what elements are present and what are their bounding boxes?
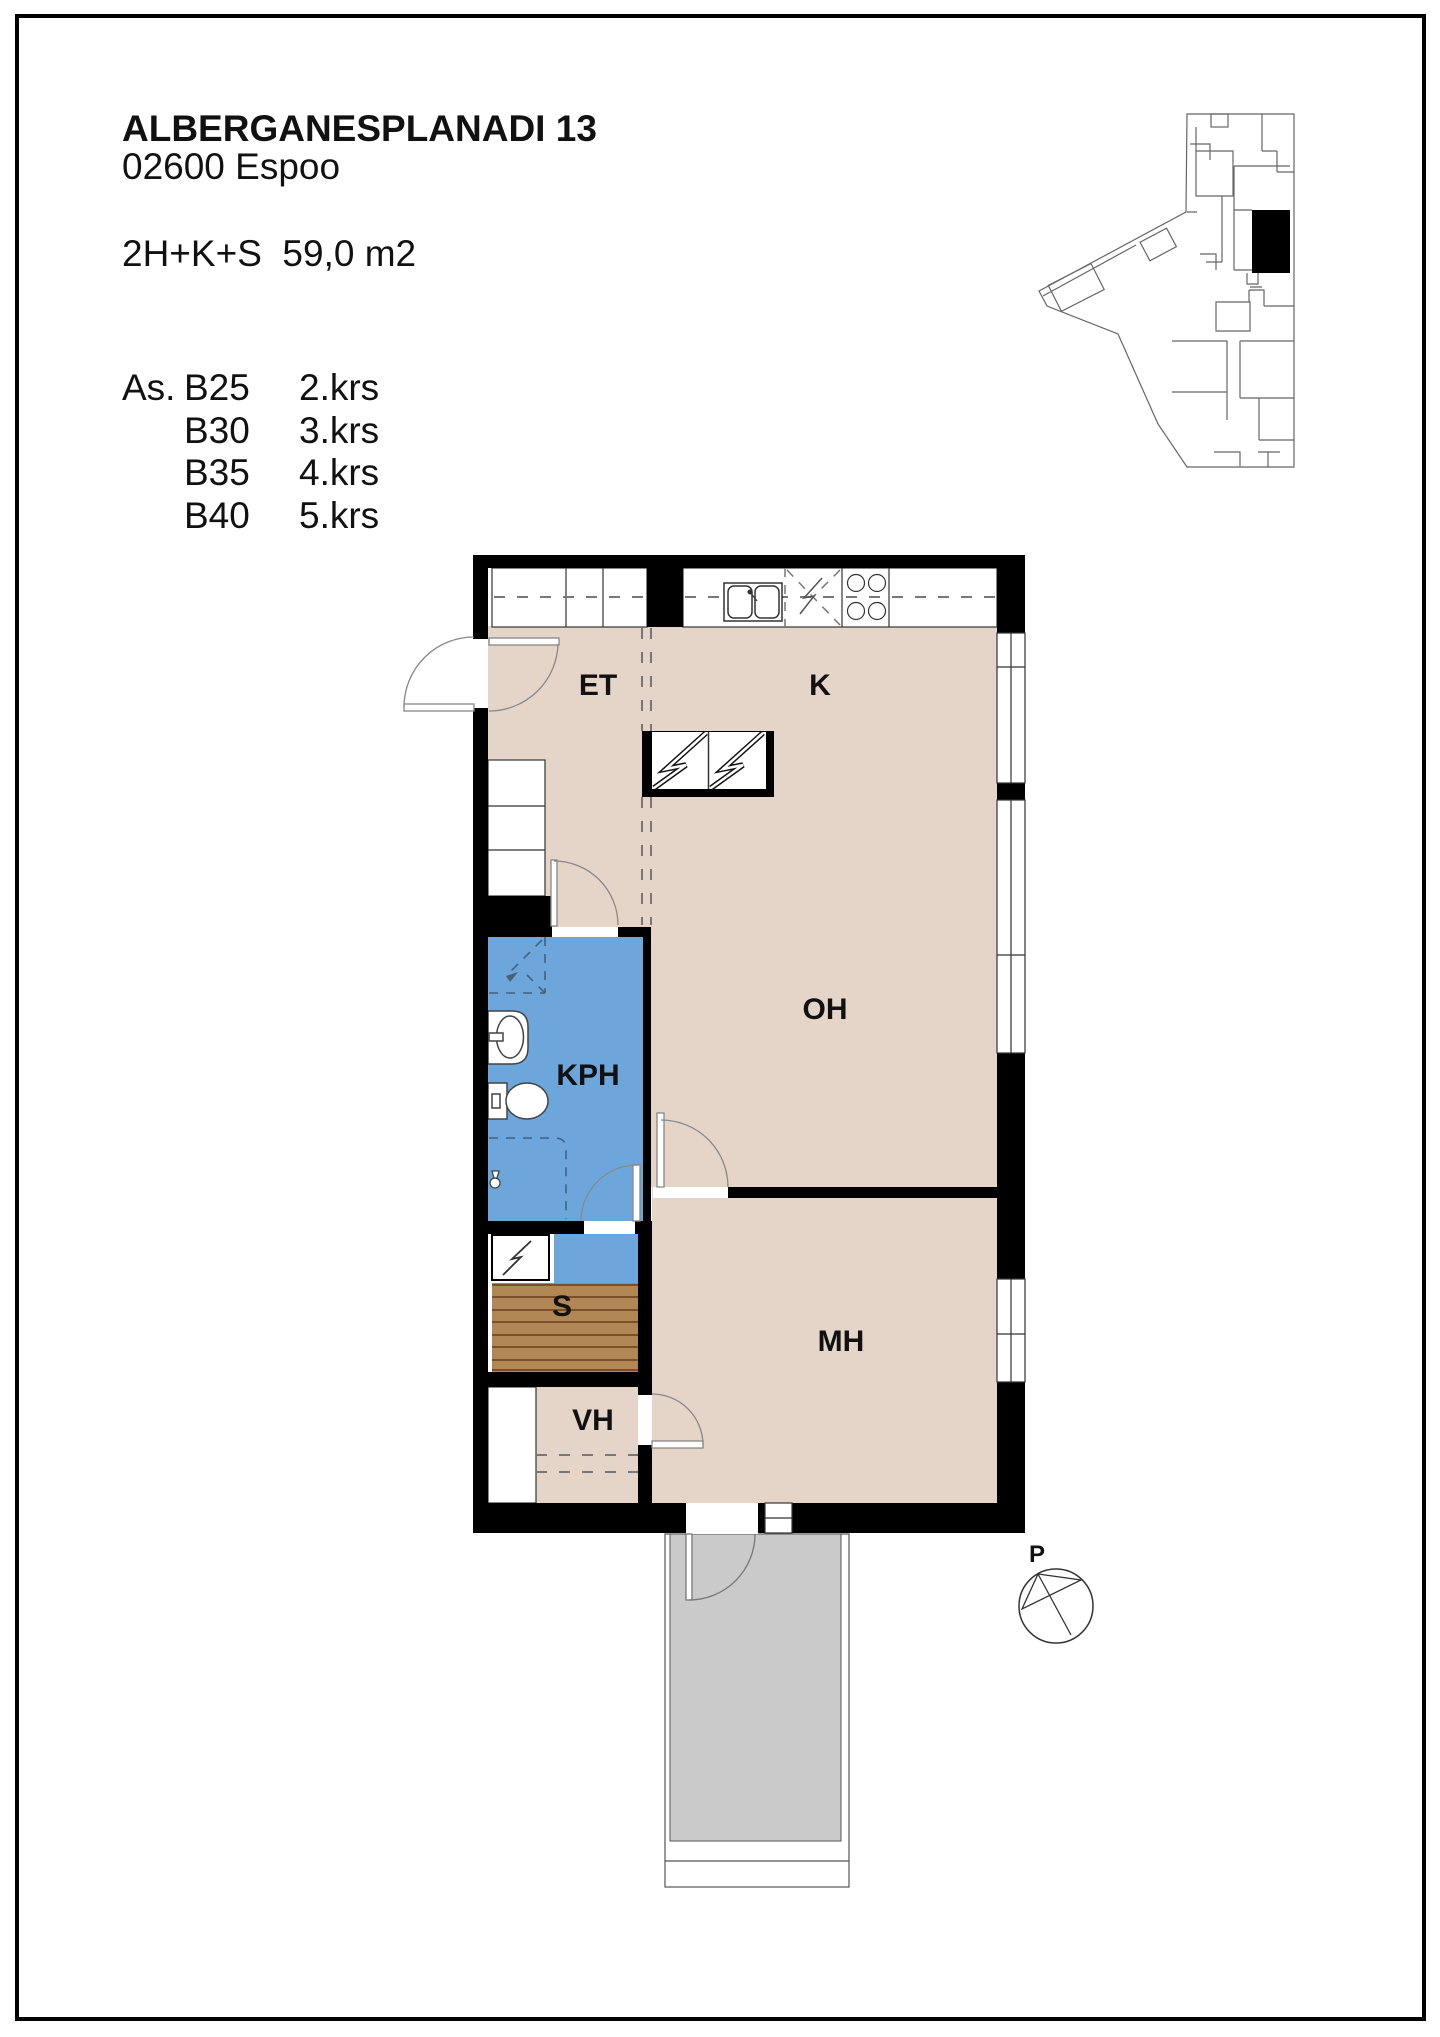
svg-text:ET: ET xyxy=(579,669,617,702)
svg-text:B30: B30 xyxy=(184,410,250,451)
svg-text:B35: B35 xyxy=(184,452,250,493)
svg-text:2.krs: 2.krs xyxy=(299,367,379,408)
svg-text:As.: As. xyxy=(122,367,175,408)
svg-text:2H+K+S 59,0 m2: 2H+K+S 59,0 m2 xyxy=(122,233,416,274)
svg-text:B40: B40 xyxy=(184,495,250,536)
svg-text:S: S xyxy=(552,1290,572,1323)
svg-text:OH: OH xyxy=(803,993,848,1026)
svg-text:MH: MH xyxy=(818,1325,865,1358)
svg-text:4.krs: 4.krs xyxy=(299,452,379,493)
svg-text:ALBERGANESPLANADI 13: ALBERGANESPLANADI 13 xyxy=(122,108,597,149)
svg-text:5.krs: 5.krs xyxy=(299,495,379,536)
svg-text:B25: B25 xyxy=(184,367,250,408)
svg-text:P: P xyxy=(1029,1541,1045,1568)
svg-text:VH: VH xyxy=(572,1404,614,1437)
svg-text:3.krs: 3.krs xyxy=(299,410,379,451)
svg-text:02600 Espoo: 02600 Espoo xyxy=(122,146,340,187)
svg-text:K: K xyxy=(809,669,831,702)
svg-text:KPH: KPH xyxy=(556,1059,619,1092)
